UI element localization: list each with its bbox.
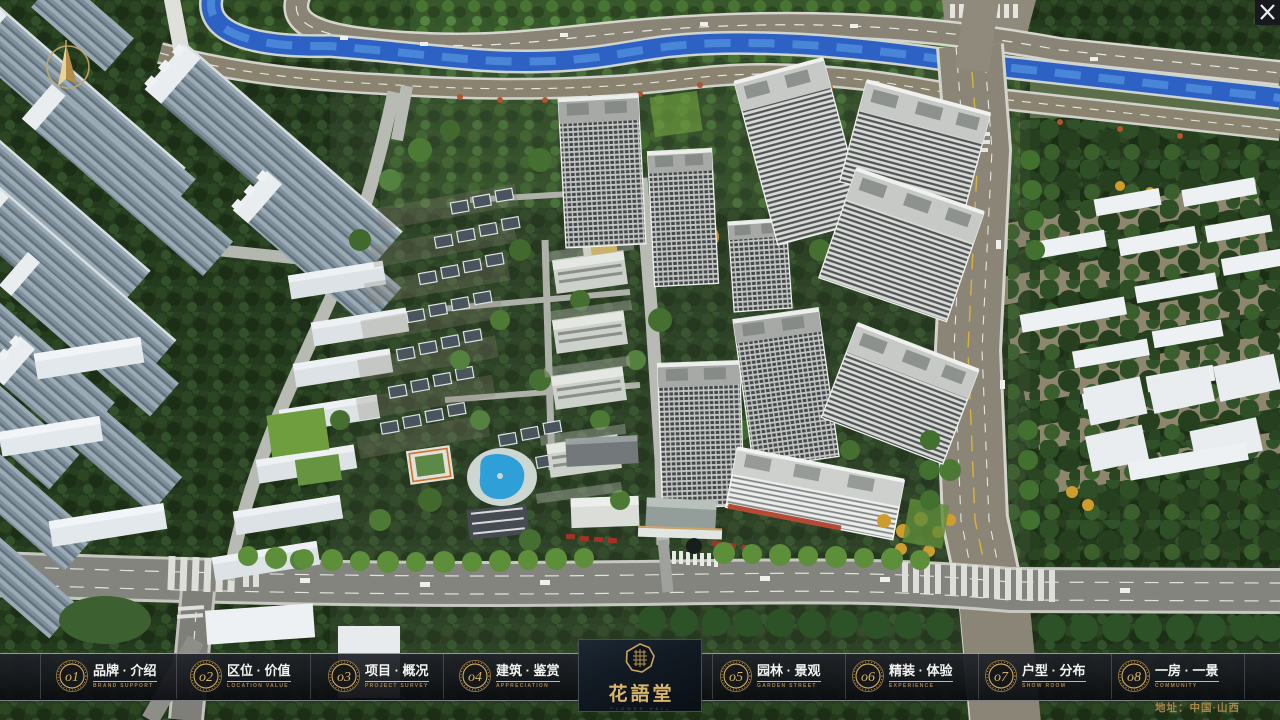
svg-text:o1: o1 bbox=[65, 670, 79, 685]
svg-text:o2: o2 bbox=[199, 670, 213, 685]
svg-text:o3: o3 bbox=[337, 670, 351, 685]
svg-text:o4: o4 bbox=[468, 670, 482, 685]
svg-text:o8: o8 bbox=[1127, 670, 1141, 685]
svg-text:o5: o5 bbox=[729, 670, 743, 685]
svg-text:o6: o6 bbox=[861, 670, 875, 685]
svg-text:o7: o7 bbox=[994, 670, 1009, 685]
